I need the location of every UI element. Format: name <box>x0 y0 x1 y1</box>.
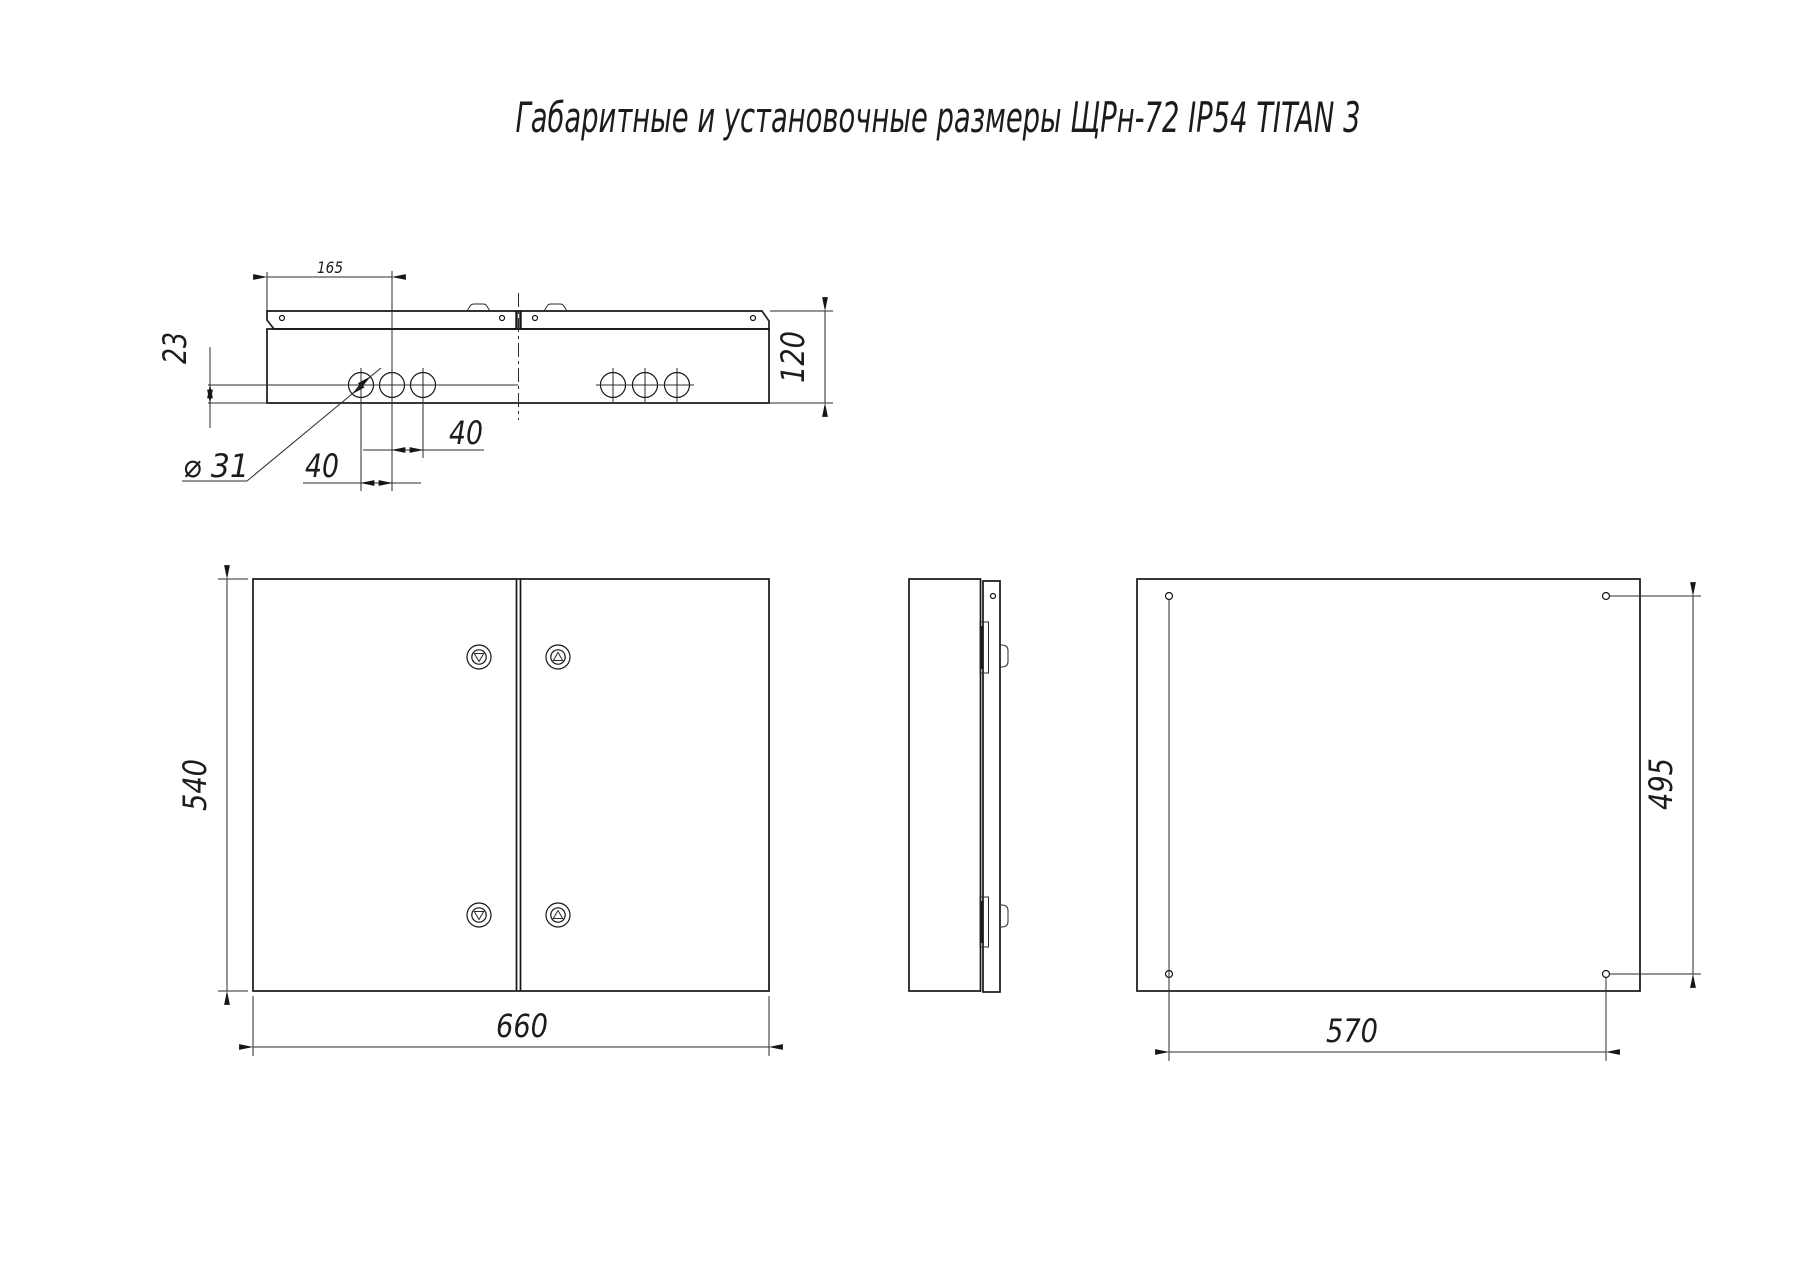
dim-40-upper: 40 <box>363 368 484 458</box>
rivet-hole <box>533 316 538 321</box>
hinge-strap-bottom <box>980 897 989 947</box>
mounting-hole <box>1166 593 1173 600</box>
engineering-drawing-canvas: Габаритные и установочные размеры ЩРн-72… <box>0 0 1809 1277</box>
rear-view: 495 570 <box>1137 579 1701 1061</box>
rivet-hole <box>991 594 996 599</box>
hinge-bump-icon <box>544 304 567 311</box>
lock-triangle-down-icon <box>474 654 483 662</box>
rivet-hole <box>280 316 285 321</box>
rear-view-outline <box>1137 579 1640 991</box>
top-view-body-outline <box>267 329 769 403</box>
flange-bevel-left <box>267 320 274 329</box>
dim-120-label: 120 <box>774 331 812 383</box>
mounting-hole <box>1603 593 1610 600</box>
dim-660: 660 <box>253 996 769 1056</box>
lock-outer-circle <box>467 903 491 927</box>
lock-outer-circle <box>546 903 570 927</box>
flange-bevel-right <box>762 311 769 321</box>
callout-hole-diameter: ⌀ 31 <box>182 368 381 485</box>
rivet-hole <box>500 316 505 321</box>
dim-40-lower: 40 <box>303 368 421 491</box>
lock-left-top <box>467 645 491 669</box>
side-view <box>909 579 1008 992</box>
drawing-title: Габаритные и установочные размеры ЩРн-72… <box>516 93 1361 142</box>
hinge-strap-top <box>980 622 989 673</box>
dim-495-label: 495 <box>1642 758 1680 810</box>
side-view-body-outline <box>983 581 1000 992</box>
dim-diameter-label: ⌀ 31 <box>183 447 249 485</box>
dim-165-label: 165 <box>317 258 343 277</box>
dim-660-label: 660 <box>496 1007 548 1045</box>
front-view-outline <box>253 579 769 991</box>
lock-left-bottom <box>467 903 491 927</box>
dim-540: 540 <box>176 579 248 991</box>
dim-495: 495 <box>1610 596 1701 974</box>
lock-right-bottom <box>546 903 570 927</box>
lock-triangle-down-icon <box>474 912 483 920</box>
hinge-knuckle-icon <box>1000 645 1008 667</box>
lock-outer-circle <box>546 645 570 669</box>
lock-triangle-up-icon <box>553 911 562 919</box>
hinge-bump-icon <box>467 304 490 311</box>
dim-40-label: 40 <box>449 414 483 452</box>
mounting-hole <box>1603 971 1610 978</box>
front-view: 540 660 <box>176 579 769 1056</box>
top-view: 165 23 ⌀ 31 40 <box>156 258 833 491</box>
dim-570-label: 570 <box>1326 1012 1378 1050</box>
dim-120: 120 <box>770 311 833 403</box>
arrowhead-line <box>371 368 382 377</box>
rivet-hole <box>751 316 756 321</box>
lock-outer-circle <box>467 645 491 669</box>
drawing-sheet: Габаритные и установочные размеры ЩРн-72… <box>0 0 1809 1277</box>
dim-540-label: 540 <box>176 759 214 811</box>
dim-23-label: 23 <box>156 332 194 364</box>
dim-40-label: 40 <box>305 447 339 485</box>
lock-right-top <box>546 645 570 669</box>
lock-triangle-up-icon <box>553 653 562 661</box>
dim-23: 23 <box>156 332 267 428</box>
hinge-knuckle-icon <box>1000 905 1008 927</box>
side-view-door-outline <box>909 579 981 991</box>
